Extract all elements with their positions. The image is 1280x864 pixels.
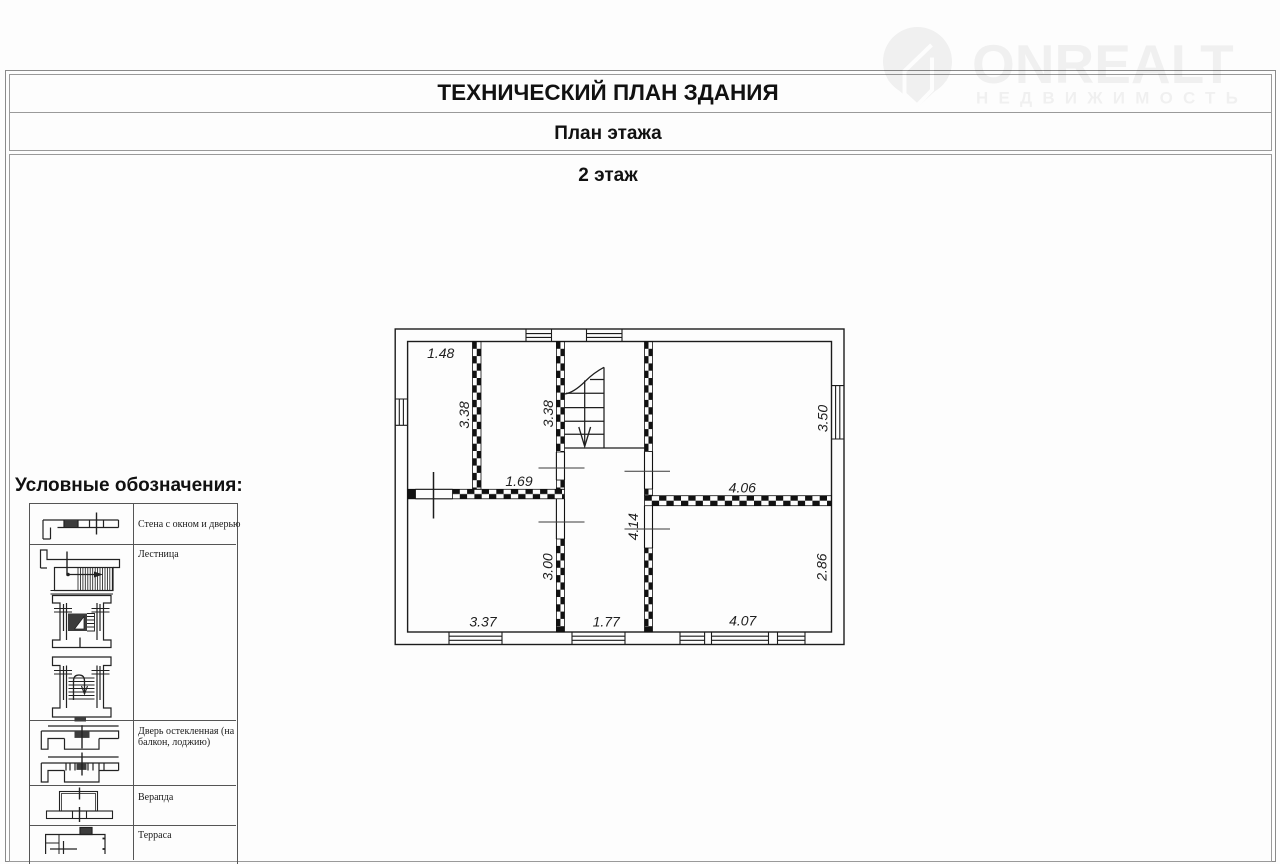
svg-text:1.48: 1.48: [427, 345, 454, 361]
svg-text:4.06: 4.06: [729, 480, 756, 496]
svg-text:3.38: 3.38: [456, 401, 472, 428]
svg-text:4.07: 4.07: [729, 613, 757, 629]
svg-text:3.00: 3.00: [540, 553, 556, 580]
svg-text:ONREALT: ONREALT: [972, 33, 1234, 95]
svg-text:3.37: 3.37: [469, 614, 497, 630]
svg-text:1.77: 1.77: [593, 614, 621, 630]
svg-text:4.14: 4.14: [625, 513, 641, 540]
svg-text:НЕДВИЖИМОСТЬ: НЕДВИЖИМОСТЬ: [976, 89, 1248, 108]
svg-text:1.69: 1.69: [505, 473, 532, 489]
svg-text:3.38: 3.38: [540, 400, 556, 427]
svg-text:2.86: 2.86: [814, 553, 830, 581]
svg-text:3.50: 3.50: [815, 405, 831, 432]
